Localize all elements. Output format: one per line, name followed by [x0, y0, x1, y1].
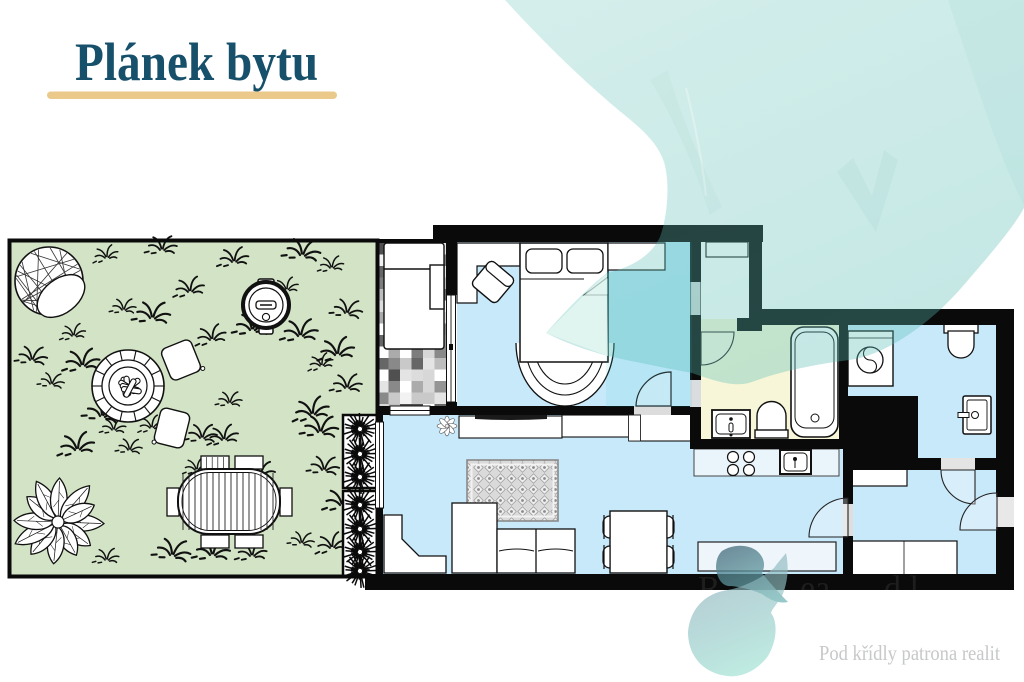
- svg-text:Pod křídly patrona realit: Pod křídly patrona realit: [819, 641, 1000, 665]
- svg-text:Plánek bytu: Plánek bytu: [75, 32, 318, 92]
